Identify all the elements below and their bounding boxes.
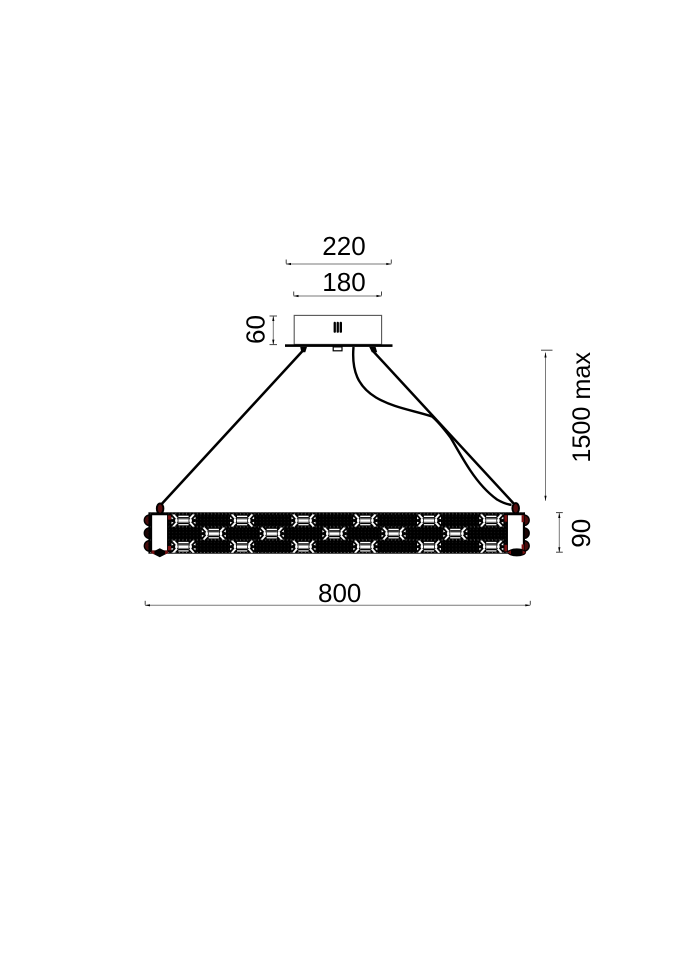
svg-text:90: 90 xyxy=(566,519,596,548)
svg-text:60: 60 xyxy=(241,315,271,344)
svg-text:800: 800 xyxy=(318,578,361,608)
svg-text:220: 220 xyxy=(322,231,365,261)
svg-text:180: 180 xyxy=(322,267,365,297)
svg-text:1500 max: 1500 max xyxy=(568,352,596,463)
